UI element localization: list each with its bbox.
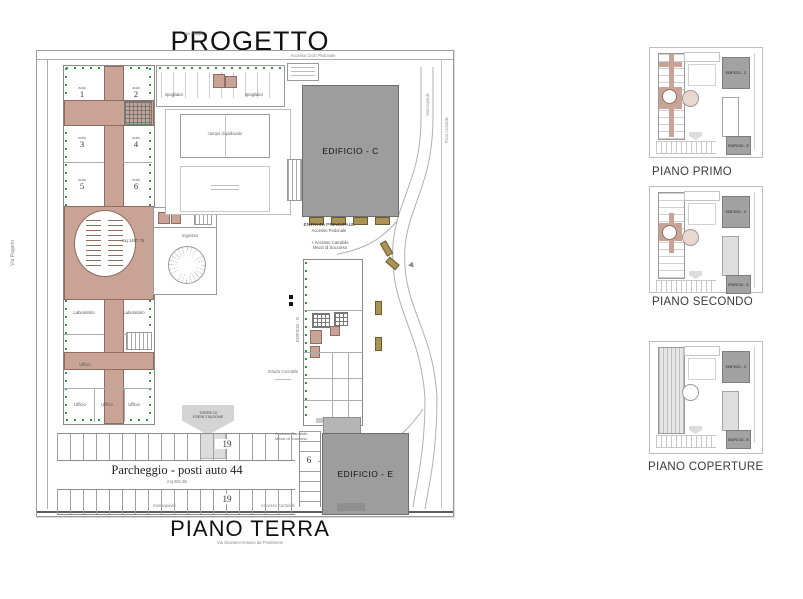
caption-street: Via Giovanni Antonio da Pordenone: [180, 540, 320, 545]
secondary-field: [180, 166, 270, 212]
bus-stop-block: [337, 503, 365, 511]
classroom-number: 2: [124, 90, 148, 99]
floor-plan-label-coperture: PIANO COPERTURE: [648, 461, 763, 473]
mini-sidewalk: [754, 347, 755, 443]
classroom-2: aula 2: [124, 86, 148, 99]
floor-plan-piano-primo: EDIFICIO - C EDIFICIO - E: [649, 47, 763, 158]
plan-caption: PIANO TERRA: [165, 516, 335, 542]
wall-line: [304, 378, 362, 379]
mini-parking: [656, 435, 716, 448]
tower-label-line2: ESERCITAZIONE: [182, 415, 234, 419]
mini-edificio-e: EDIFICIO - E: [726, 136, 751, 155]
wall-line: [64, 334, 104, 335]
street-label-top-left: Via Filippo: [184, 31, 203, 36]
mini-pavilion: [682, 229, 699, 246]
mini-court: [688, 203, 716, 225]
floor-plan-label-primo: PIANO PRIMO: [652, 166, 732, 178]
service-core: [330, 326, 340, 336]
entrance-note-line2: Accesso Pedonale: [289, 228, 369, 233]
laboratory-label: Laboratorio: [116, 310, 152, 315]
locker-core: [213, 74, 225, 88]
site-plan-sheet: Accesso Ciclo Pedonale Marciapiede Pista…: [36, 50, 454, 517]
access-note-line2: Mezzi di Soccorso: [295, 245, 365, 250]
auditorium: [74, 210, 136, 277]
wall-line: [122, 162, 152, 163]
locker-building: spogliatoi spogliatoi: [156, 65, 285, 107]
stair-block: [126, 332, 152, 350]
loading-dock: [375, 217, 390, 225]
classroom-5: aula 5: [70, 178, 94, 191]
auditorium-seats: [108, 220, 123, 267]
mini-school-building: [658, 53, 685, 140]
mini-sidewalk: [754, 53, 755, 149]
floor-plan-piano-coperture: EDIFICIO - C EDIFICIO - E: [649, 341, 763, 454]
legend-marker: [289, 302, 293, 306]
classroom-number: 5: [70, 182, 94, 191]
school-building: mq 1487.76 aula 1 aula 2 aula 3: [63, 65, 155, 425]
training-tower: TORRE DI ESERCITAZIONE: [182, 405, 234, 435]
kitchen-block: [312, 313, 330, 328]
mini-auditorium: [662, 225, 677, 240]
road-edge-left: [47, 59, 48, 509]
classroom-1: aula 1: [70, 86, 94, 99]
office-label: Ufficio: [122, 402, 146, 407]
street-label-bottom-left: marciapiede: [153, 503, 176, 508]
mini-edificio-e: EDIFICIO - E: [726, 430, 751, 449]
mini-parking: [656, 280, 716, 293]
note-box: [287, 63, 319, 81]
edificio-d-building: [303, 259, 363, 426]
floor-plan-piano-secondo: EDIFICIO - C EDIFICIO - E: [649, 186, 763, 293]
wall-line: [304, 352, 362, 353]
parking-count-bottom: 19: [215, 494, 239, 504]
mini-auditorium: [662, 89, 677, 104]
sports-field: campo di pallavolo: [165, 109, 291, 215]
office-label: Ufficio: [70, 362, 100, 367]
field-text-lines: [211, 185, 239, 193]
edificio-c-building: EDIFICIO - C: [302, 85, 399, 217]
classroom-6: aula 6: [124, 178, 148, 191]
mini-tower: [689, 132, 702, 140]
mini-edificio-c: EDIFICIO - C: [722, 57, 750, 89]
mini-edificio-c: EDIFICIO - C: [722, 196, 750, 228]
sports-court: campo di pallavolo: [180, 114, 270, 158]
mini-pavilion-roof: [682, 384, 699, 401]
mini-court: [688, 358, 716, 380]
street-label-left: Via Pagano: [10, 240, 16, 266]
road-area-lines: [275, 379, 291, 383]
parking-count-side: 6: [300, 455, 318, 465]
mini-court: [688, 64, 716, 86]
parking-row-bottom: [57, 489, 295, 515]
street-label-top-center: Accesso Ciclo Pedonale: [273, 53, 353, 58]
classroom-number: 4: [124, 140, 148, 149]
mini-tower: [689, 271, 702, 279]
parking-label: Parcheggio - posti auto 44: [77, 463, 277, 478]
wall-line: [64, 162, 104, 163]
mini-edificio-e: EDIFICIO - E: [726, 275, 751, 294]
street-label-right-lower: Pista Ciclabile: [444, 117, 449, 143]
mini-tower: [689, 426, 702, 434]
auditorium-seats: [86, 220, 101, 267]
street-label-bottom-right: Accesso Carrabile: [261, 503, 295, 508]
office-label: Ufficio: [95, 402, 119, 407]
mini-sidewalk: [754, 192, 755, 288]
mini-school-building: [658, 192, 685, 279]
wall-line: [348, 352, 349, 418]
drawing-canvas: PROGETTO Via Filippo Via Pagano Accesso …: [0, 0, 803, 599]
classroom-number: 3: [70, 140, 94, 149]
parking-area-label: mq 991.56: [157, 479, 197, 484]
annex-room: [171, 214, 181, 224]
mini-edificio-c: EDIFICIO - C: [722, 351, 750, 383]
stair-block: [124, 101, 152, 125]
green-dots-top: [159, 67, 281, 69]
wall-line: [304, 400, 362, 401]
mini-parking: [656, 141, 716, 154]
locker-label: spogliatoi: [245, 92, 263, 97]
gate-marker: [375, 301, 382, 315]
parking-row-top: [57, 433, 295, 461]
parking-column-side: [299, 431, 321, 507]
mini-school-roof: [658, 347, 685, 434]
wall-line: [332, 352, 333, 418]
note-text-lines: [291, 67, 315, 77]
mini-edificio-d: [722, 391, 739, 431]
classroom-number: 6: [124, 182, 148, 191]
mini-locker-roof: [684, 346, 720, 356]
mini-edificio-d: [722, 97, 739, 137]
service-core: [310, 330, 322, 344]
entrance-pavilion-label: Ingresso: [182, 233, 198, 238]
access-note: + Accesso Carrabile Mezzi di Soccorso: [295, 240, 365, 250]
corridor-arm-bottom: [64, 352, 154, 370]
mini-edificio-d: [722, 236, 739, 276]
classroom-4: aula 4: [124, 136, 148, 149]
locker-label: spogliatoi: [165, 92, 183, 97]
edificio-d-label: EDIFICIO - D: [295, 317, 300, 342]
legend-marker: [289, 295, 293, 299]
mini-corridor: [659, 62, 682, 67]
road-label: Strada Carrabile: [265, 369, 301, 374]
parking-count-top: 19: [215, 439, 239, 449]
stair-block: [287, 159, 302, 201]
office-label: Ufficio: [68, 402, 92, 407]
laboratory-label: Laboratorio: [66, 310, 102, 315]
wall-line: [304, 310, 362, 311]
floor-plan-label-secondo: PIANO SECONDO: [652, 296, 753, 308]
entrance-pavilion: Ingresso: [153, 227, 217, 295]
street-label-right-upper: Marciapiede: [425, 93, 430, 116]
kitchen-block: [334, 312, 348, 326]
classroom-3: aula 3: [70, 136, 94, 149]
green-dots-left: [305, 262, 307, 422]
entrance-note: ENTRATA PRINCIPALE Accesso Pedonale: [289, 223, 369, 233]
classroom-number: 1: [70, 90, 94, 99]
edificio-e-building: EDIFICIO - E: [322, 433, 409, 515]
wall-line: [64, 388, 152, 389]
mini-locker-building: [684, 191, 720, 201]
spiral-stair: [168, 246, 206, 284]
mini-pavilion: [682, 90, 699, 107]
gate-marker: [375, 337, 382, 351]
locker-core: [225, 76, 237, 88]
court-label: campo di pallavolo: [187, 131, 263, 136]
hall-area-label: mq 1487.76: [116, 238, 150, 243]
mini-locker-building: [684, 52, 720, 62]
